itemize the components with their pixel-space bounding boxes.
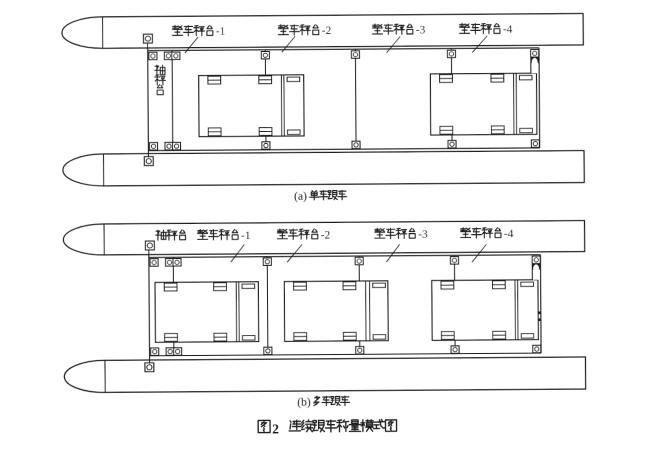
svg-text:-2: -2 [322, 25, 332, 37]
svg-text:-3: -3 [416, 24, 426, 36]
svg-text:-4: -4 [503, 24, 513, 36]
svg-text:-1: -1 [241, 230, 251, 242]
svg-text:(b): (b) [297, 397, 311, 409]
svg-text:-3: -3 [418, 229, 428, 241]
svg-text:-4: -4 [504, 228, 514, 240]
svg-text:2: 2 [272, 421, 279, 436]
svg-text:-2: -2 [321, 229, 331, 241]
svg-text:-1: -1 [216, 26, 226, 38]
svg-text:(a): (a) [294, 191, 307, 203]
